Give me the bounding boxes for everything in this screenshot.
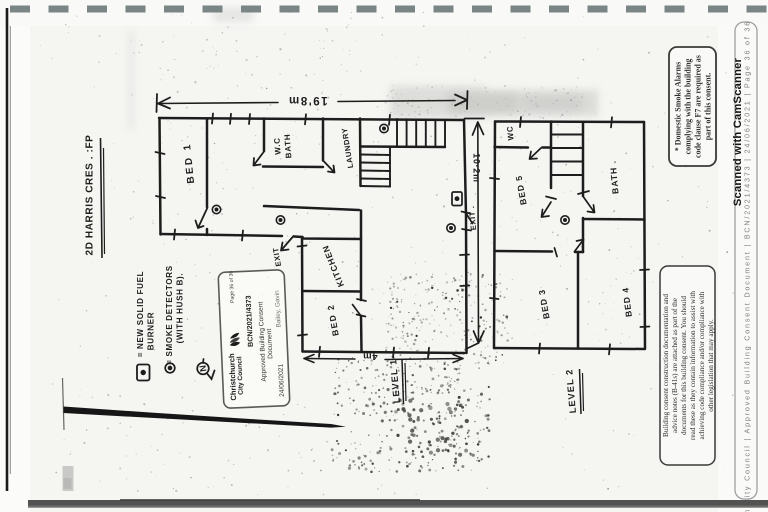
svg-text:code clause F7 are required as: code clause F7 are required as bbox=[694, 55, 703, 158]
svg-text:Document: Document bbox=[266, 328, 274, 358]
svg-text:WC: WC bbox=[505, 125, 515, 141]
svg-text:BATH: BATH bbox=[283, 133, 294, 158]
svg-text:Christchurch City Council |: Christchurch City Council | Approved Bui… bbox=[743, 20, 752, 512]
svg-text:10·2m: 10·2m bbox=[472, 153, 482, 182]
svg-text:other legislation that may app: other legislation that may apply. bbox=[707, 319, 715, 412]
svg-text:(WITH HUSH B).: (WITH HUSH B). bbox=[176, 273, 185, 344]
svg-text:* Domestic Smoke Alarms: * Domestic Smoke Alarms bbox=[674, 62, 683, 152]
svg-text:24/06/2021: 24/06/2021 bbox=[278, 363, 286, 397]
svg-text:= NEW SOLID FUEL: = NEW SOLID FUEL bbox=[136, 271, 145, 358]
svg-text:part of this consent.: part of this consent. bbox=[704, 73, 713, 141]
svg-text:Building consent construction: Building consent construction documentat… bbox=[662, 294, 670, 437]
svg-text:4m: 4m bbox=[362, 351, 377, 362]
svg-text:achieving code compliance and/: achieving code compliance and/or complia… bbox=[698, 291, 706, 439]
svg-text:advice notes (B-41s) are attac: advice notes (B-41s) are attached as par… bbox=[671, 298, 679, 433]
svg-text:BURNER: BURNER bbox=[147, 312, 156, 350]
svg-text:documents for this building co: documents for this building consent. You… bbox=[680, 296, 688, 435]
svg-text:W.C: W.C bbox=[272, 137, 282, 155]
svg-text:read these as they contain inf: read these as they contain information t… bbox=[689, 291, 697, 440]
svg-text:2D HARRIS CRES . :FP: 2D HARRIS CRES . :FP bbox=[85, 135, 96, 256]
svg-text:= SMOKE DETECTORS: = SMOKE DETECTORS bbox=[165, 265, 174, 365]
svg-text:19'8m: 19'8m bbox=[287, 94, 327, 106]
svg-text:complying with the building: complying with the building bbox=[684, 59, 693, 155]
